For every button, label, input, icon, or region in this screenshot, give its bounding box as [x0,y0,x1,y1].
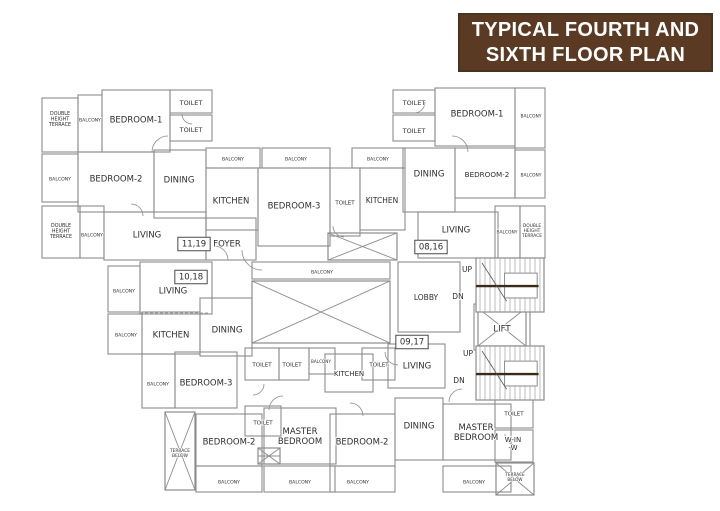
b-toilet-label: TOILET [503,412,524,418]
r-toilet-1-label: TOILET [402,99,426,107]
unit-08-16: 08,16 [419,243,443,253]
r-bedroom-2-label: BEDROOM-2 [465,170,510,179]
b-balcony-1-label: BALCONY [218,480,240,486]
lm-balcony-label: BALCONY [311,359,331,364]
tl-toilet-2-label: TOILET [179,126,203,134]
ll-balcony-1-label: BALCONY [113,289,135,295]
tl-living-label: LIVING [133,231,162,241]
b-bedroom-2-m-label: BEDROOM-2 [336,438,389,448]
lm-living-label: LIVING [403,362,432,372]
core-lift-label: LIFT [493,325,511,335]
room-b-balcony-3 [330,466,395,492]
lm-toilet-4-label: TOILET [252,421,273,427]
small-shaft-cross [258,448,280,464]
c-balcony-1-label: BALCONY [222,157,244,163]
b-bedroom-2-l-label: BEDROOM-2 [203,438,256,448]
c-kitchen-label: KITCHEN [213,197,250,207]
ll-kitchen-label: KITCHEN [153,331,190,341]
c-bedroom-3-label: BEDROOM-3 [268,202,321,212]
tl-toilet-1-label: TOILET [179,99,203,107]
lm-toilet-1-label: TOILET [251,363,272,369]
c-balcony-4-label: BALCONY [311,270,333,276]
b-balcony-2-label: BALCONY [289,480,311,486]
tl-terrace-2-label: DOUBLEHEIGHTTERRACE [49,223,72,240]
b-terrace-l-label: TERRACEBELOW [169,448,190,459]
door-arc [452,136,468,152]
c-balcony-2-label: BALCONY [285,157,307,163]
tl-balcony-3-label: BALCONY [81,233,103,239]
b-terrace-r-label: TERRACEBELOW [504,472,525,482]
ll-bedroom-3-label: BEDROOM-3 [180,379,233,389]
b-balcony-3-label: BALCONY [347,480,369,486]
room-b-balcony-2 [264,466,335,492]
tl-terrace-1-label: DOUBLEHEIGHTTERRACE [48,111,71,128]
tl-bedroom-1-label: BEDROOM-1 [110,116,163,126]
b-master-r-label: MASTERBEDROOM [454,423,498,443]
tl-balcony-2-label: BALCONY [49,177,71,183]
plan-title-line2: SIXTH FLOOR PLAN [486,43,685,68]
room-tl-balcony-3 [80,206,104,258]
room-b-balcony-4 [443,466,511,492]
c-balcony-3-label: BALCONY [367,157,389,163]
tl-dining-label: DINING [164,176,195,186]
stair-lower-staircase [476,346,544,400]
r-toilet-2-label: TOILET [402,127,426,135]
duct-shaft-cross [328,233,397,260]
door-arc [131,204,143,216]
ll-living-label: LIVING [159,287,188,297]
r-dining-label: DINING [414,170,445,180]
lm-kitchen-label: KITCHEN [334,370,364,378]
courtyard-cross [252,281,390,343]
core-lobby-label: LOBBY [414,293,439,302]
tl-foyer-label: FOYER [213,240,241,250]
stair-lower-up-label: UP [463,349,473,358]
r-balcony-2-label: BALCONY [521,173,542,179]
unit-09-17: 09,17 [400,338,424,348]
lm-toilet-3-label: TOILET [368,363,389,369]
r-balcony-1-label: BALCONY [521,114,542,120]
lm-toilet-2-label: TOILET [281,363,302,369]
b-master-l-label: MASTERBEDROOM [278,427,322,447]
stair-upper-up-label: UP [462,265,472,274]
b-winw-label: W-IN-W [505,436,521,452]
r-living-label: LIVING [442,226,471,236]
plan-title-line1: TYPICAL FOURTH AND [472,18,700,43]
room-ll-balcony-3 [142,354,175,408]
stair-upper-staircase [476,258,544,312]
r-terrace-label: DOUBLEHEIGHTTERRACE [521,223,542,239]
b-balcony-4-label: BALCONY [463,480,485,486]
ll-balcony-2-label: BALCONY [115,333,137,339]
stair-upper-dn-label: DN [452,292,463,301]
tl-bedroom-2-label: BEDROOM-2 [90,175,143,185]
ll-dining-label: DINING [212,326,243,336]
floor-plan-page: DOUBLEHEIGHTTERRACEBALCONYBEDROOM-1TOILE… [0,0,720,511]
room-tl-balcony-1 [78,95,102,152]
c-kitchen-2-label: KITCHEN [366,196,399,205]
stair-lower-dn-label: DN [453,376,464,385]
unit-11-19: 11,19 [182,240,206,250]
ll-balcony-3-label: BALCONY [147,382,169,388]
unit-10-18: 10,18 [179,273,203,283]
tl-balcony-1-label: BALCONY [79,118,101,124]
room-r-dining [403,148,455,212]
r-balcony-3-label: BALCONY [497,230,518,236]
r-bedroom-1-label: BEDROOM-1 [451,110,504,120]
room-b-balcony-1 [196,466,262,492]
plan-title: TYPICAL FOURTH AND SIXTH FLOOR PLAN [458,13,713,72]
door-arc [253,384,264,395]
b-dining-label: DINING [404,422,435,432]
door-arc [449,389,462,402]
floor-plan-drawing: DOUBLEHEIGHTTERRACEBALCONYBEDROOM-1TOILE… [0,0,720,511]
c-toilet-label: TOILET [334,201,355,207]
